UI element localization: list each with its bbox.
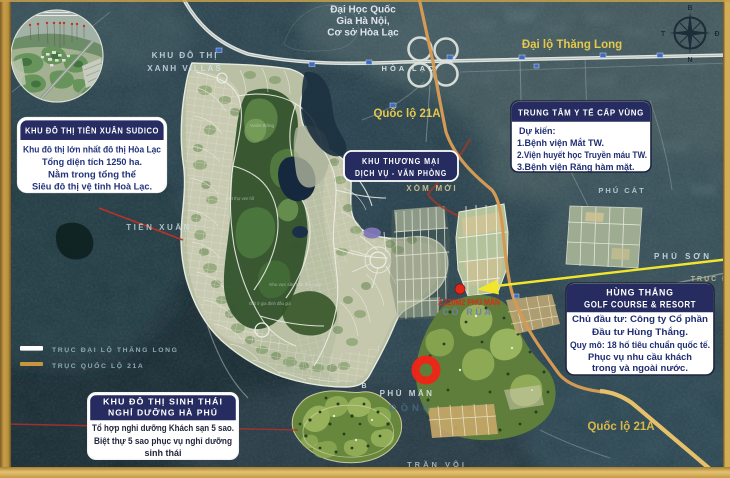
- svg-text:sinh thái: sinh thái: [144, 448, 181, 458]
- svg-text:Nằm trong tổng thể: Nằm trong tổng thể: [48, 169, 136, 180]
- svg-text:Quy mô: 18 hố tiêu chuẩn quốc: Quy mô: 18 hố tiêu chuẩn quốc tế.: [570, 340, 710, 350]
- svg-text:Khu đô thị lớn nhất đô thị Hòa: Khu đô thị lớn nhất đô thị Hòa Lạc: [23, 145, 161, 155]
- svg-text:T: T: [661, 31, 666, 38]
- svg-text:KHU ĐÔ THỊ: KHU ĐÔ THỊ: [152, 49, 219, 60]
- svg-text:KHU THƯƠNG MẠI: KHU THƯƠNG MẠI: [362, 157, 440, 166]
- svg-text:Siêu đô thị vệ tinh Hoà Lạc.: Siêu đô thị vệ tinh Hoà Lạc.: [32, 182, 152, 192]
- svg-text:HÙNG THẮNG: HÙNG THẮNG: [606, 287, 674, 298]
- svg-text:TRỤC ĐẠI LỘ THĂNG LONG: TRỤC ĐẠI LỘ THĂNG LONG: [52, 345, 179, 354]
- svg-text:B: B: [361, 383, 366, 390]
- svg-text:KHU ĐÔ THỊ SINH THÁI: KHU ĐÔ THỊ SINH THÁI: [103, 396, 223, 407]
- svg-text:KHU ĐÔ THỊ TIÊN XUÂN SUDICO: KHU ĐÔ THỊ TIÊN XUÂN SUDICO: [25, 125, 159, 136]
- svg-text:Đại Học Quốc: Đại Học Quốc: [330, 4, 396, 16]
- svg-text:ĐỒNG: ĐỒNG: [390, 402, 435, 414]
- svg-text:2.Viện huyết học Truyền máu TW: 2.Viện huyết học Truyền máu TW.: [517, 150, 647, 160]
- svg-text:PHÚ MÃN: PHÚ MÃN: [380, 389, 435, 398]
- svg-text:Cơ sở Hòa Lạc: Cơ sở Hòa Lạc: [327, 28, 399, 39]
- svg-text:trong và ngoài nước.: trong và ngoài nước.: [592, 363, 688, 373]
- svg-text:PHÚ SƠN: PHÚ SƠN: [654, 252, 712, 261]
- svg-text:Tổ hợp nghỉ dưỡng Khách sạn 5: Tổ hợp nghỉ dưỡng Khách sạn 5 sao.: [92, 423, 234, 433]
- svg-text:XANH VILLAS: XANH VILLAS: [147, 64, 223, 73]
- svg-text:N: N: [687, 57, 692, 64]
- svg-text:Vườn thông: Vườn thông: [250, 123, 274, 128]
- svg-text:B: B: [687, 5, 692, 12]
- svg-text:Đ: Đ: [714, 31, 719, 38]
- svg-text:Phục vụ nhu cầu khách: Phục vụ nhu cầu khách: [588, 352, 692, 362]
- svg-text:TIÊN XUÂN: TIÊN XUÂN: [126, 223, 192, 232]
- svg-text:HÒA LẠC: HÒA LẠC: [382, 64, 437, 73]
- svg-text:2.220M2 PHÚ MÃN: 2.220M2 PHÚ MÃN: [438, 298, 500, 307]
- svg-text:Dự kiến:: Dự kiến:: [519, 126, 556, 136]
- svg-text:Tổng diện tích 1250 ha.: Tổng diện tích 1250 ha.: [42, 157, 142, 167]
- svg-text:Biệt thự ven hồ: Biệt thự ven hồ: [226, 196, 255, 201]
- svg-text:Đại lộ Thăng Long: Đại lộ Thăng Long: [522, 39, 622, 51]
- svg-text:Quốc lộ 21A: Quốc lộ 21A: [373, 108, 440, 120]
- svg-text:Khu vực săn bắn thú nuôi: Khu vực săn bắn thú nuôi: [269, 281, 320, 287]
- svg-text:Gia Hà Nội,: Gia Hà Nội,: [336, 16, 390, 27]
- svg-text:1.Bệnh viện Mắt TW.: 1.Bệnh viện Mắt TW.: [517, 137, 604, 148]
- svg-text:Quốc lộ 21A: Quốc lộ 21A: [587, 421, 654, 433]
- svg-text:PHÚ CÁT: PHÚ CÁT: [598, 186, 645, 195]
- svg-text:Đất ở gia đình đấu giá: Đất ở gia đình đấu giá: [249, 301, 291, 306]
- svg-text:Đầu tư Hùng Thắng.: Đầu tư Hùng Thắng.: [592, 326, 688, 337]
- svg-text:GOLF COURSE & RESORT: GOLF COURSE & RESORT: [584, 300, 696, 310]
- svg-text:3.Bệnh viện Răng hàm mặt.: 3.Bệnh viện Răng hàm mặt.: [517, 162, 635, 172]
- svg-text:Biệt thự 5 sao phục vụ nghỉ dư: Biệt thự 5 sao phục vụ nghỉ dưỡng: [94, 436, 232, 446]
- svg-text:XÓM MỚI: XÓM MỚI: [406, 184, 458, 193]
- svg-text:DỊCH VỤ - VĂN PHÒNG: DỊCH VỤ - VĂN PHÒNG: [355, 169, 447, 178]
- svg-text:CỔ RÙA: CỔ RÙA: [442, 306, 493, 317]
- svg-text:TRUNG TÂM Y TẾ CẤP VÙNG: TRUNG TÂM Y TẾ CẤP VÙNG: [518, 107, 644, 118]
- svg-text:Chủ đầu tư: Công ty Cổ phần: Chủ đầu tư: Công ty Cổ phần: [572, 314, 708, 324]
- svg-text:NGHỈ DƯỠNG HÀ PHÚ: NGHỈ DƯỠNG HÀ PHÚ: [108, 407, 218, 418]
